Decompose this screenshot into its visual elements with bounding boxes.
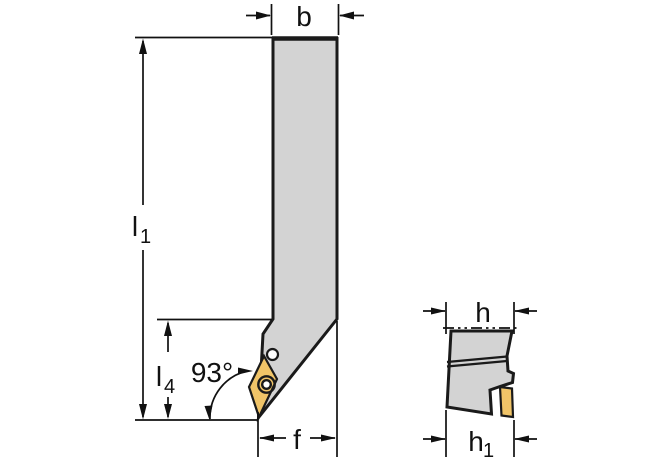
dimension-h1-subscript: 1: [483, 440, 494, 460]
dimension-h-label: h: [475, 297, 491, 328]
arrowhead: [205, 406, 213, 421]
arrowhead: [431, 436, 446, 443]
side-view: [447, 331, 514, 417]
pocket-relief-notch: [267, 349, 278, 360]
arrowhead: [164, 321, 172, 337]
arrowhead: [514, 436, 529, 443]
dimension-h1: h 1: [423, 410, 537, 460]
dimension-l4-subscript: 4: [164, 376, 175, 398]
arrowhead: [256, 12, 271, 20]
arrowhead: [238, 368, 253, 375]
dimension-l4-label: l: [156, 361, 162, 392]
dimension-l1-label: l: [132, 211, 138, 242]
arrowhead: [321, 435, 336, 442]
dimension-l1-subscript: 1: [140, 226, 151, 248]
arrowhead: [259, 435, 274, 442]
arrowhead: [514, 308, 529, 315]
arrowhead: [431, 308, 446, 315]
arrowhead: [164, 404, 172, 419]
dimension-f-label: f: [293, 424, 301, 455]
arrowhead: [339, 12, 354, 20]
dimension-h1-label: h: [468, 426, 484, 457]
arrowhead: [139, 404, 147, 420]
arrowhead: [139, 39, 147, 55]
dimension-b-label: b: [296, 1, 312, 32]
dimension-angle-label: 93°: [191, 357, 233, 388]
dimension-b: b: [246, 1, 364, 35]
dimension-angle: 93°: [191, 357, 253, 420]
dimension-h: h: [423, 297, 537, 334]
insert-screw-hole-inner: [262, 380, 271, 389]
front-view: [249, 39, 338, 418]
side-view-insert: [500, 387, 513, 417]
toolholder-drawing: b l 1 l 4 93° f: [0, 0, 670, 460]
